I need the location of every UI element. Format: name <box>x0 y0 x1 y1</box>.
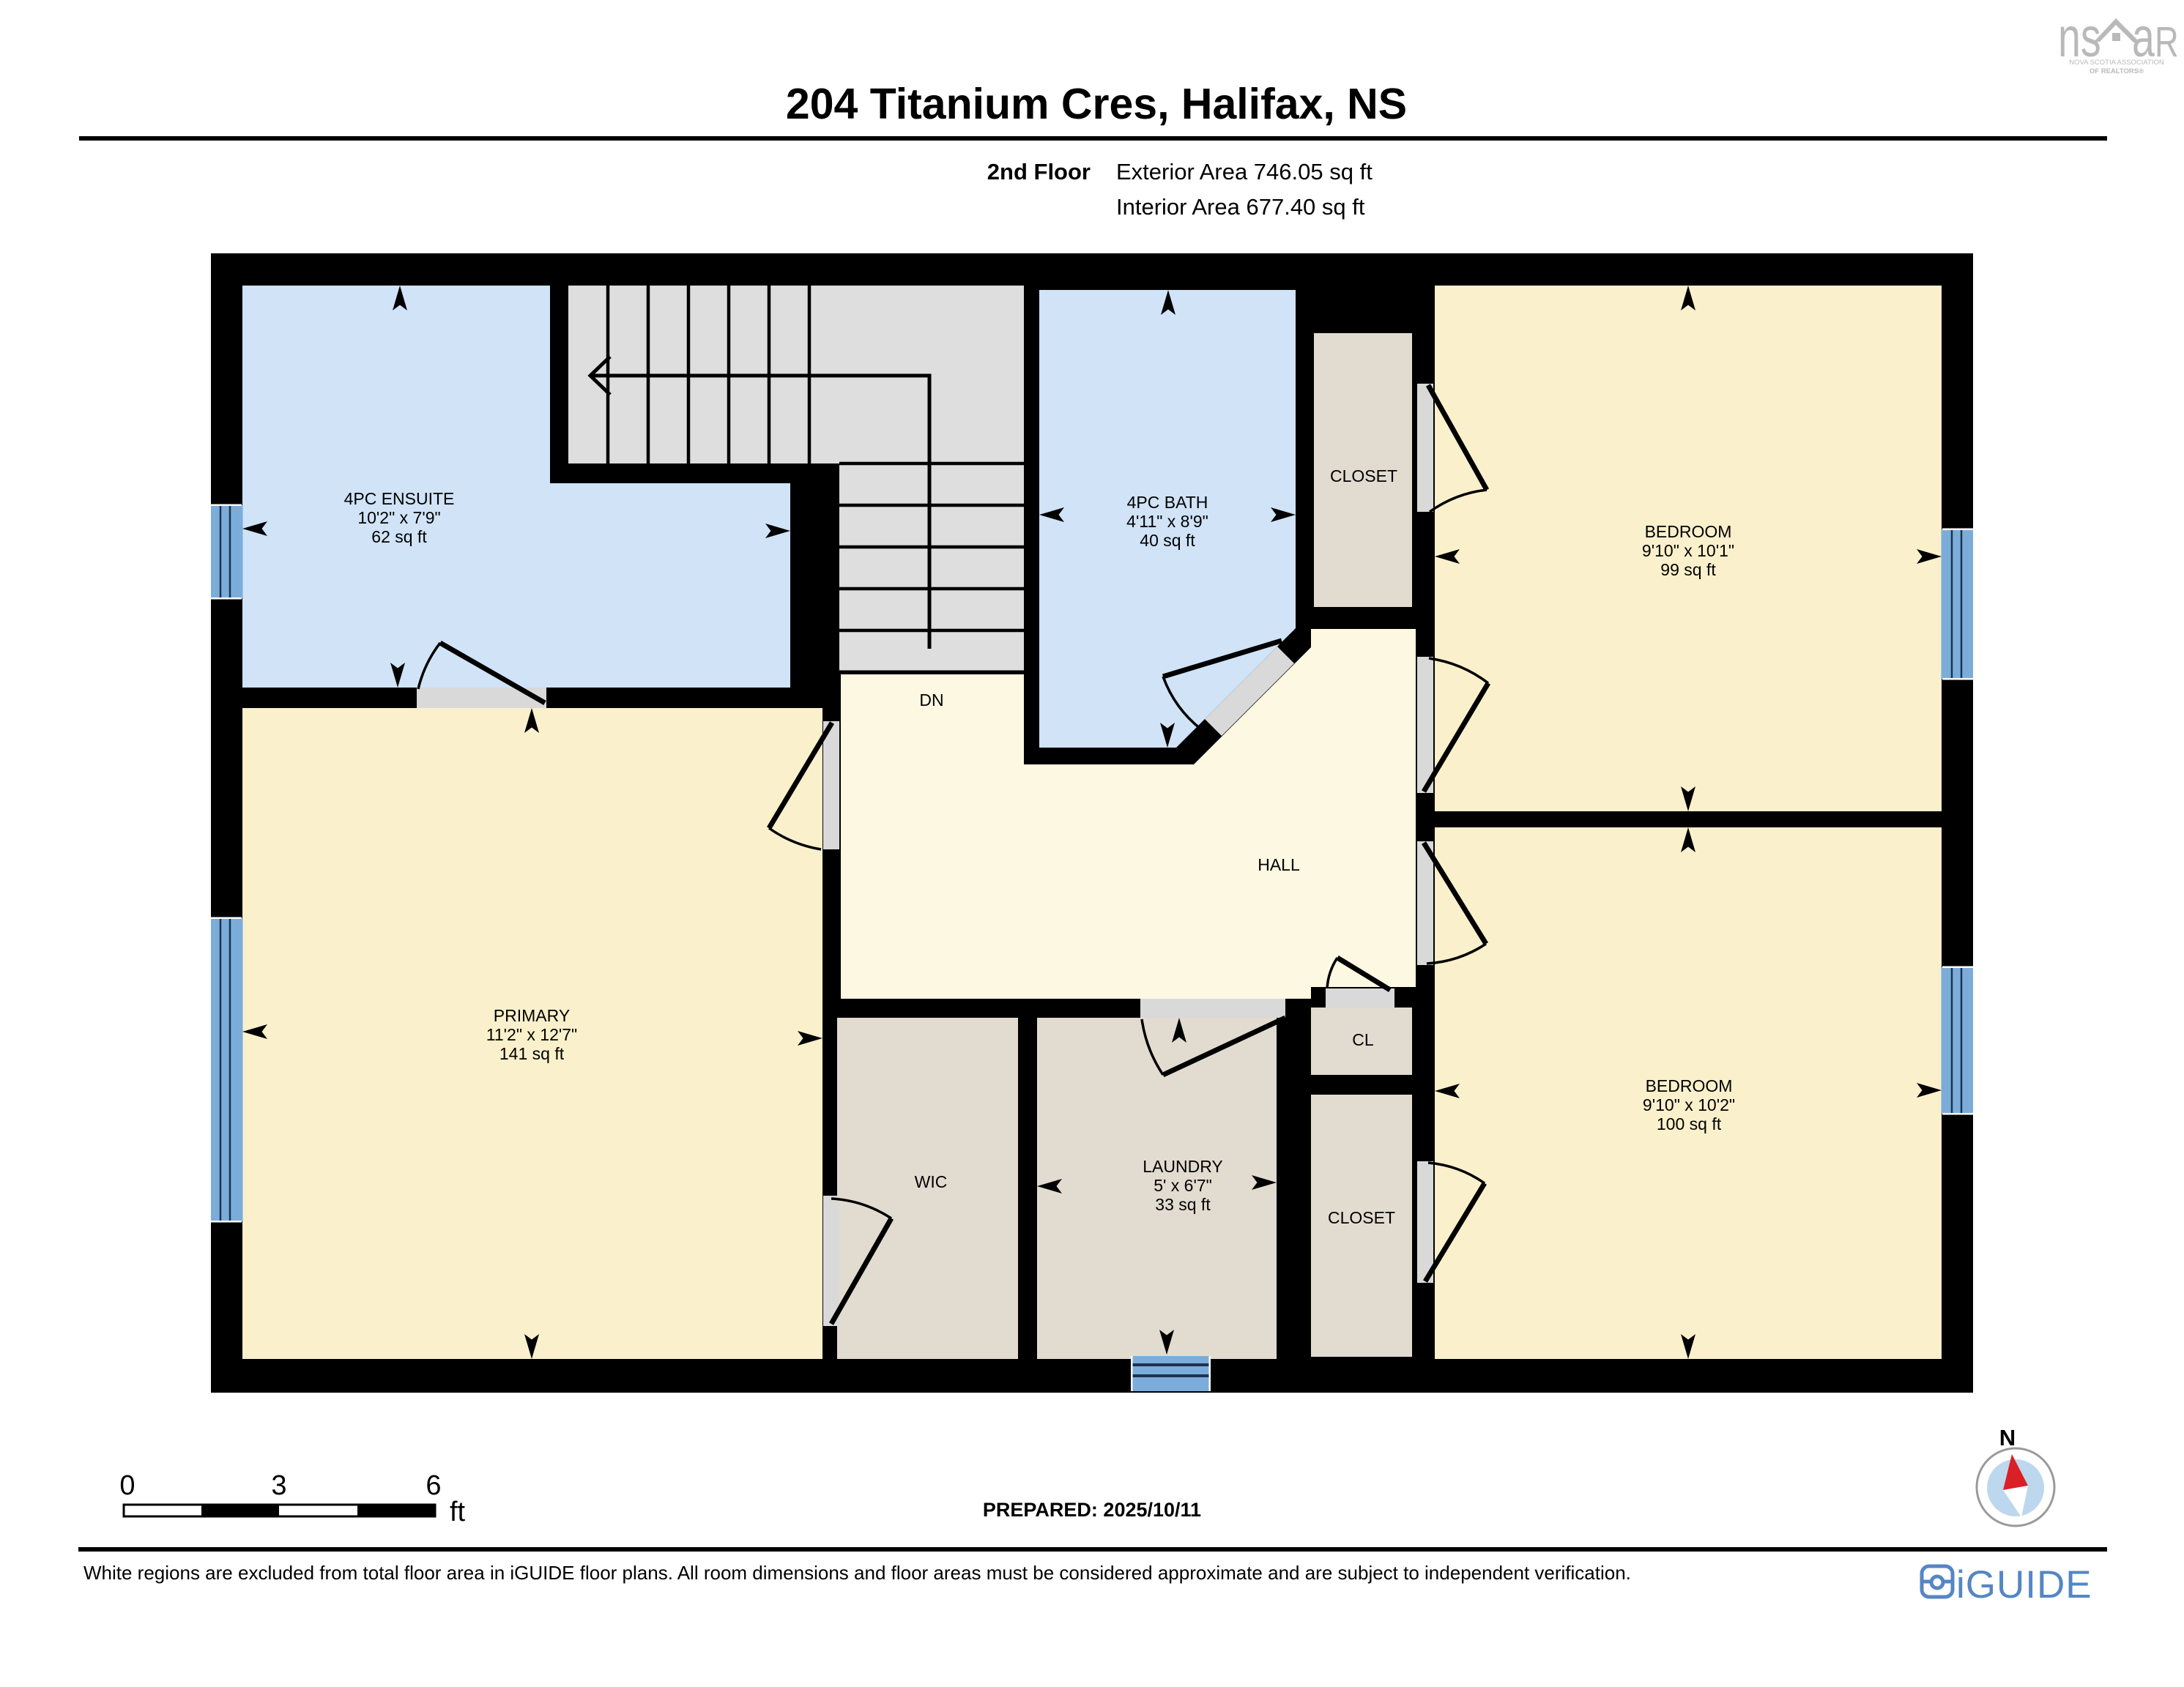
svg-text:40 sq ft: 40 sq ft <box>1140 531 1195 550</box>
svg-text:100 sq ft: 100 sq ft <box>1657 1114 1722 1133</box>
svg-text:WIC: WIC <box>915 1172 948 1191</box>
svg-text:4PC ENSUITE: 4PC ENSUITE <box>344 489 455 508</box>
svg-text:Interior Area 677.40 sq ft: Interior Area 677.40 sq ft <box>1116 194 1365 220</box>
svg-text:Exterior Area 746.05 sq ft: Exterior Area 746.05 sq ft <box>1116 159 1373 185</box>
svg-text:CLOSET: CLOSET <box>1330 466 1397 485</box>
svg-text:10'2" x 7'9": 10'2" x 7'9" <box>357 508 440 527</box>
svg-text:CLOSET: CLOSET <box>1328 1208 1395 1227</box>
svg-text:CL: CL <box>1352 1030 1374 1049</box>
svg-text:9'10" x 10'2": 9'10" x 10'2" <box>1643 1095 1735 1114</box>
svg-text:White regions are excluded fro: White regions are excluded from total fl… <box>83 1562 1631 1584</box>
svg-text:ft: ft <box>450 1497 466 1527</box>
svg-text:OF REALTORS®: OF REALTORS® <box>2090 67 2144 75</box>
svg-text:N: N <box>1999 1425 2016 1450</box>
svg-text:5' x 6'7": 5' x 6'7" <box>1154 1176 1212 1195</box>
svg-text:11'2" x 12'7": 11'2" x 12'7" <box>486 1025 577 1044</box>
svg-text:3: 3 <box>271 1470 286 1501</box>
svg-text:6: 6 <box>426 1470 441 1501</box>
svg-text:99 sq ft: 99 sq ft <box>1660 560 1716 579</box>
svg-text:0: 0 <box>119 1470 135 1501</box>
svg-text:PRIMARY: PRIMARY <box>494 1006 570 1025</box>
svg-text:62 sq ft: 62 sq ft <box>371 527 427 546</box>
svg-text:4PC BATH: 4PC BATH <box>1127 493 1208 512</box>
svg-text:141 sq ft: 141 sq ft <box>499 1044 565 1063</box>
svg-text:iGUIDE: iGUIDE <box>1956 1563 2092 1606</box>
svg-text:HALL: HALL <box>1258 855 1300 874</box>
svg-text:LAUNDRY: LAUNDRY <box>1143 1157 1223 1176</box>
svg-text:BEDROOM: BEDROOM <box>1645 522 1732 541</box>
svg-text:BEDROOM: BEDROOM <box>1646 1076 1733 1095</box>
svg-text:33 sq ft: 33 sq ft <box>1155 1195 1211 1214</box>
svg-text:204 Titanium Cres, Halifax, NS: 204 Titanium Cres, Halifax, NS <box>786 80 1407 128</box>
svg-text:NOVA SCOTIA ASSOCIATION: NOVA SCOTIA ASSOCIATION <box>2069 59 2164 67</box>
svg-text:4'11" x 8'9": 4'11" x 8'9" <box>1126 512 1208 531</box>
svg-text:2nd Floor: 2nd Floor <box>987 159 1091 185</box>
svg-text:PREPARED: 2025/10/11: PREPARED: 2025/10/11 <box>983 1499 1201 1521</box>
svg-text:9'10" x 10'1": 9'10" x 10'1" <box>1642 541 1734 560</box>
svg-text:DN: DN <box>919 690 943 710</box>
